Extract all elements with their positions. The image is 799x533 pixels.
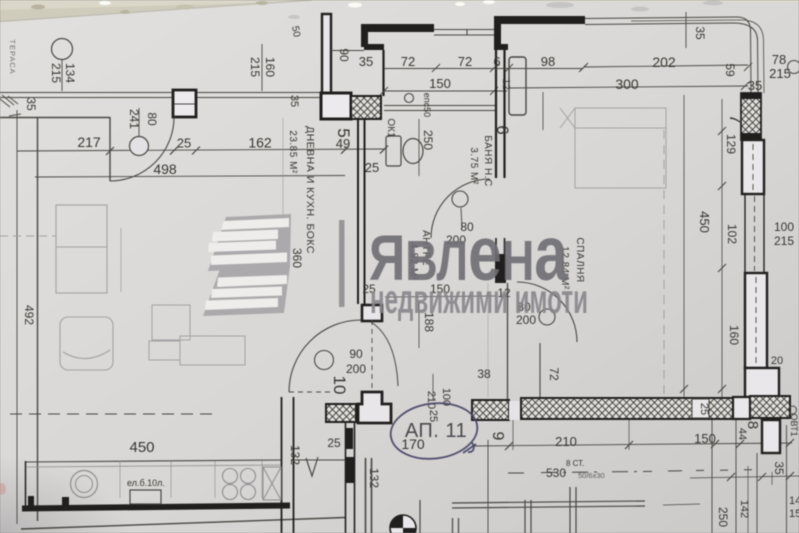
- svg-text:100: 100: [774, 220, 794, 234]
- svg-text:170: 170: [401, 436, 425, 452]
- svg-text:12: 12: [500, 78, 511, 90]
- svg-text:3.75 М²: 3.75 М²: [468, 147, 479, 185]
- svg-text:25: 25: [698, 403, 710, 415]
- svg-text:80: 80: [145, 112, 159, 126]
- svg-text:160: 160: [263, 57, 277, 77]
- svg-text:ТЕРАСА: ТЕРАСА: [8, 39, 17, 74]
- svg-text:134: 134: [63, 63, 77, 83]
- svg-text:450: 450: [129, 439, 154, 456]
- svg-text:98: 98: [541, 54, 555, 69]
- svg-text:35: 35: [693, 26, 707, 40]
- svg-text:200: 200: [346, 362, 366, 376]
- svg-text:44: 44: [736, 428, 748, 440]
- svg-text:25: 25: [365, 160, 379, 175]
- svg-text:ДНЕВНА И КУХН. БОКС: ДНЕВНА И КУХН. БОКС: [304, 126, 316, 254]
- svg-text:23.85 М²: 23.85 М²: [287, 130, 298, 174]
- svg-text:недвижими имоти: недвижими имоти: [370, 276, 588, 322]
- svg-text:90: 90: [349, 347, 363, 361]
- svg-text:7: 7: [726, 114, 745, 123]
- svg-text:35: 35: [288, 95, 300, 107]
- svg-text:132: 132: [367, 468, 381, 488]
- svg-text:ел.б.10л.: ел.б.10л.: [127, 478, 165, 488]
- svg-text:ОК1: ОК1: [385, 118, 396, 138]
- svg-text:162: 162: [248, 135, 272, 151]
- svg-text:БАНЯ Н.С: БАНЯ Н.С: [482, 135, 493, 186]
- svg-text:6: 6: [493, 54, 500, 69]
- svg-text:210: 210: [425, 391, 437, 409]
- svg-text:215: 215: [248, 57, 262, 77]
- svg-text:492: 492: [22, 305, 36, 325]
- svg-text:250: 250: [716, 507, 730, 527]
- svg-text:ОВТ1: ОВТ1: [789, 414, 799, 437]
- svg-text:160: 160: [727, 325, 741, 345]
- svg-text:20: 20: [771, 355, 783, 367]
- svg-text:450: 450: [697, 211, 712, 233]
- svg-text:215: 215: [774, 234, 794, 248]
- svg-text:35: 35: [748, 78, 762, 93]
- svg-text:300: 300: [615, 76, 639, 92]
- svg-text:72: 72: [401, 54, 415, 69]
- svg-text:35: 35: [772, 461, 786, 475]
- svg-text:241: 241: [127, 109, 141, 129]
- svg-text:132: 132: [288, 445, 302, 465]
- svg-text:142: 142: [738, 500, 750, 518]
- svg-text:5: 5: [334, 128, 353, 137]
- svg-text:150: 150: [694, 431, 716, 446]
- svg-text:25: 25: [177, 136, 191, 151]
- svg-text:35: 35: [24, 97, 38, 111]
- svg-text:102: 102: [725, 224, 739, 244]
- svg-text:50/6х30: 50/6х30: [578, 471, 605, 480]
- svg-text:15: 15: [789, 508, 799, 520]
- svg-text:250: 250: [421, 130, 435, 150]
- svg-text:25: 25: [327, 436, 341, 450]
- svg-text:6: 6: [493, 125, 512, 134]
- svg-text:217: 217: [77, 134, 101, 150]
- svg-text:202: 202: [652, 54, 676, 70]
- svg-text:150: 150: [429, 76, 451, 91]
- svg-text:епс50: епс50: [422, 93, 432, 117]
- svg-text:530: 530: [546, 466, 566, 480]
- svg-text:210: 210: [555, 434, 577, 449]
- svg-text:215: 215: [49, 63, 63, 83]
- svg-text:38: 38: [477, 367, 491, 381]
- svg-text:129: 129: [724, 134, 738, 154]
- svg-text:72: 72: [458, 54, 472, 69]
- svg-text:35: 35: [359, 54, 373, 69]
- svg-text:72: 72: [547, 367, 561, 381]
- svg-text:90: 90: [337, 48, 351, 62]
- svg-text:14: 14: [789, 495, 799, 507]
- svg-text:78: 78: [772, 52, 786, 67]
- svg-text:360: 360: [290, 248, 304, 268]
- svg-text:59: 59: [723, 63, 737, 77]
- svg-text:10: 10: [330, 376, 349, 395]
- svg-text:8: 8: [744, 421, 761, 429]
- svg-text:8 СТ.: 8 СТ.: [566, 459, 584, 468]
- svg-text:9: 9: [489, 432, 506, 441]
- svg-text:498: 498: [153, 161, 177, 177]
- svg-text:49: 49: [336, 136, 350, 151]
